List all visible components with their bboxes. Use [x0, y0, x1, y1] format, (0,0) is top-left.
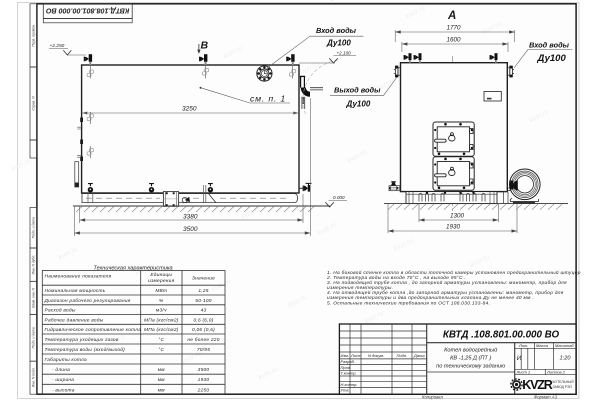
svg-text:3250: 3250	[182, 106, 197, 113]
svg-text:Лист: Лист	[350, 353, 362, 358]
svg-text:Копировал: Копировал	[422, 395, 443, 400]
svg-text:Подп.: Подп.	[397, 353, 408, 358]
svg-text:1930: 1930	[198, 377, 210, 383]
svg-text:В: В	[201, 40, 209, 52]
svg-text:3380: 3380	[183, 213, 198, 220]
svg-text:1930: 1930	[446, 223, 461, 230]
svg-text:Утв.: Утв.	[341, 388, 350, 393]
svg-text:Взам. инв. N: Взам. инв. N	[31, 287, 35, 307]
svg-text:1,25: 1,25	[198, 288, 208, 294]
svg-text:+2.100: +2.100	[337, 51, 352, 56]
svg-text:Рабочее давление воды: Рабочее давление воды	[45, 317, 104, 323]
svg-text:KVZR: KVZR	[522, 378, 552, 392]
svg-text:Вход воды: Вход воды	[316, 26, 357, 35]
svg-text:%: %	[159, 298, 164, 304]
svg-text:КВТД .108.801.00.000 ВО: КВТД .108.801.00.000 ВО	[443, 330, 560, 341]
svg-text:0,06 (0,6): 0,06 (0,6)	[192, 327, 215, 333]
svg-text:- высота: - высота	[52, 388, 75, 393]
svg-text:N докум.: N докум.	[368, 353, 384, 358]
svg-text:Габариты котла: Габариты котла	[45, 357, 87, 363]
svg-text:Ду100: Ду100	[326, 39, 351, 48]
svg-text:Гидравлическое сопротивление к: Гидравлическое сопротивление котла	[45, 327, 142, 333]
svg-text:Ду100: Ду100	[537, 53, 567, 64]
svg-text:Температура уходящих газов: Температура уходящих газов	[45, 337, 119, 343]
svg-text:Значение: Значение	[192, 276, 215, 282]
svg-text:- длина: - длина	[52, 367, 70, 373]
svg-text:Т.контр.: Т.контр.	[341, 371, 357, 376]
svg-text:по техническому заданию: по техническому заданию	[436, 364, 506, 370]
svg-text:2. Температура воды на входе: 2. Температура воды на входе 70°С , на в…	[326, 275, 466, 281]
svg-text:МВт: МВт	[155, 288, 167, 294]
svg-text:КВТД.108.801.00.000 ВО: КВТД.108.801.00.000 ВО	[46, 7, 130, 16]
svg-text:измерения температуры и два пр: измерения температуры и два предохраните…	[327, 295, 534, 301]
svg-text:- ширина: - ширина	[52, 378, 74, 383]
svg-text:°С: °С	[158, 337, 164, 343]
svg-text:1. На боковой стенке котла в: 1. На боковой стенке котла в области топ…	[327, 269, 581, 276]
svg-text:Подп. и дата: Подп. и дата	[31, 327, 35, 348]
svg-text:Лит.: Лит.	[518, 343, 528, 348]
svg-text:Разраб.: Разраб.	[341, 359, 355, 364]
svg-text:Единицы: Единицы	[150, 272, 172, 278]
svg-text:МПа (кгс/см2): МПа (кгс/см2)	[144, 317, 179, 323]
svg-text:Инв. N подл.: Инв. N подл.	[31, 367, 35, 387]
svg-text:1300: 1300	[450, 212, 465, 219]
svg-text:Формат А3: Формат А3	[534, 395, 558, 400]
svg-text:не более 220: не более 220	[187, 337, 219, 343]
svg-text:3500: 3500	[198, 367, 210, 373]
svg-text:КВ -1,25 Д (ПТ ): КВ -1,25 Д (ПТ )	[450, 356, 491, 362]
svg-text:Лист 1: Лист 1	[516, 370, 531, 375]
svg-text:Наименование показателя: Наименование показателя	[45, 274, 112, 280]
svg-text:1770: 1770	[447, 25, 462, 32]
svg-text:МПа (кгс/см2): МПа (кгс/см2)	[144, 327, 179, 333]
svg-text:Масштаб: Масштаб	[555, 343, 574, 348]
svg-text:м3/ч: м3/ч	[156, 308, 167, 314]
svg-text:Справ. N: Справ. N	[31, 96, 35, 111]
svg-text:+2.250: +2.250	[50, 43, 65, 49]
svg-text:43: 43	[201, 308, 207, 314]
svg-text:50-100: 50-100	[195, 298, 212, 304]
svg-text:4. На отводящей трубе котла ,: 4. На отводящей трубе котла ,до запорной…	[327, 289, 564, 296]
svg-text:1600: 1600	[447, 37, 462, 44]
svg-text:И: И	[517, 355, 522, 362]
svg-text:измерения: измерения	[148, 279, 174, 284]
svg-text:0.000: 0.000	[333, 195, 345, 200]
svg-text:мм: мм	[158, 378, 166, 383]
svg-text:70/95: 70/95	[197, 347, 210, 353]
svg-text:Расход воды: Расход воды	[45, 308, 76, 314]
svg-text:Выход воды: Выход воды	[334, 86, 381, 95]
svg-text:мм: мм	[158, 368, 166, 373]
svg-text:ЗАВОД РЭП: ЗАВОД РЭП	[553, 385, 573, 389]
svg-text:А: А	[447, 10, 456, 22]
svg-text:Листов 2: Листов 2	[546, 370, 566, 375]
svg-text:КОТЕЛЬНЫЙ: КОТЕЛЬНЫЙ	[553, 380, 575, 384]
svg-text:1:20: 1:20	[560, 356, 572, 362]
svg-text:Котел водогрейный: Котел водогрейный	[444, 347, 497, 354]
svg-text:Дата: Дата	[413, 353, 425, 358]
svg-text:°С: °С	[158, 347, 164, 353]
svg-text:Диапазон рабочего регулировани: Диапазон рабочего регулирования	[44, 298, 131, 304]
svg-text:см. п. 1: см. п. 1	[250, 94, 286, 104]
svg-text:Ду100: Ду100	[346, 100, 371, 109]
svg-text:Температура воды (вход/выход): Температура воды (вход/выход)	[45, 347, 126, 353]
svg-text:Изм.: Изм.	[341, 353, 350, 358]
svg-text:2250: 2250	[197, 387, 210, 393]
svg-text:Перв. примен.: Перв. примен.	[31, 24, 35, 47]
svg-text:Пров.: Пров.	[341, 365, 352, 370]
svg-text:3500: 3500	[183, 226, 198, 233]
svg-text:мм: мм	[158, 388, 166, 393]
svg-text:Подп. и дата: Подп. и дата	[31, 217, 35, 238]
svg-text:Инв. N дубл.: Инв. N дубл.	[31, 255, 35, 275]
svg-text:Масса: Масса	[536, 343, 549, 348]
svg-text:Номинальная мощность: Номинальная мощность	[45, 288, 106, 294]
svg-text:0,6 (6,0): 0,6 (6,0)	[193, 317, 213, 323]
svg-text:5. Остальные технические треб: 5. Остальные технические требования по О…	[327, 300, 490, 306]
svg-text:Вход воды: Вход воды	[529, 41, 570, 50]
svg-text:Н.контр.: Н.контр.	[341, 382, 358, 387]
